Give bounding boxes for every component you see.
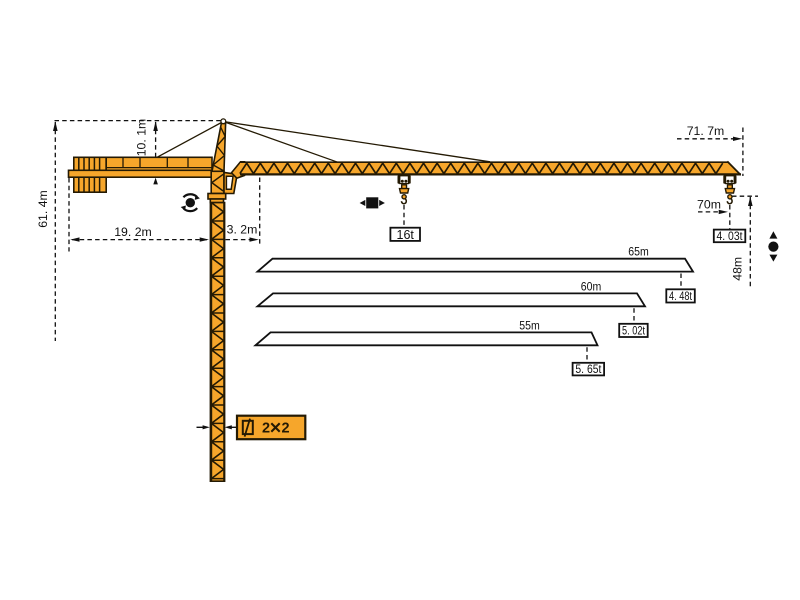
svg-text:2: 2 <box>262 421 270 437</box>
svg-text:2: 2 <box>281 421 289 437</box>
svg-text:70m: 70m <box>697 198 721 212</box>
svg-text:55m: 55m <box>519 318 540 332</box>
svg-text:61. 4m: 61. 4m <box>36 190 50 228</box>
svg-text:3. 2m: 3. 2m <box>227 223 258 237</box>
svg-text:65m: 65m <box>628 245 649 259</box>
svg-text:48m: 48m <box>731 257 745 281</box>
svg-text:5. 02t: 5. 02t <box>622 326 646 338</box>
svg-text:4. 03t: 4. 03t <box>717 231 744 243</box>
svg-text:4. 48t: 4. 48t <box>669 291 693 303</box>
svg-text:71. 7m: 71. 7m <box>687 124 725 138</box>
svg-text:5. 65t: 5. 65t <box>575 364 602 376</box>
svg-text:16t: 16t <box>397 228 415 242</box>
svg-text:10. 1m: 10. 1m <box>135 119 149 157</box>
svg-text:19. 2m: 19. 2m <box>114 225 152 239</box>
svg-text:60m: 60m <box>581 279 602 293</box>
